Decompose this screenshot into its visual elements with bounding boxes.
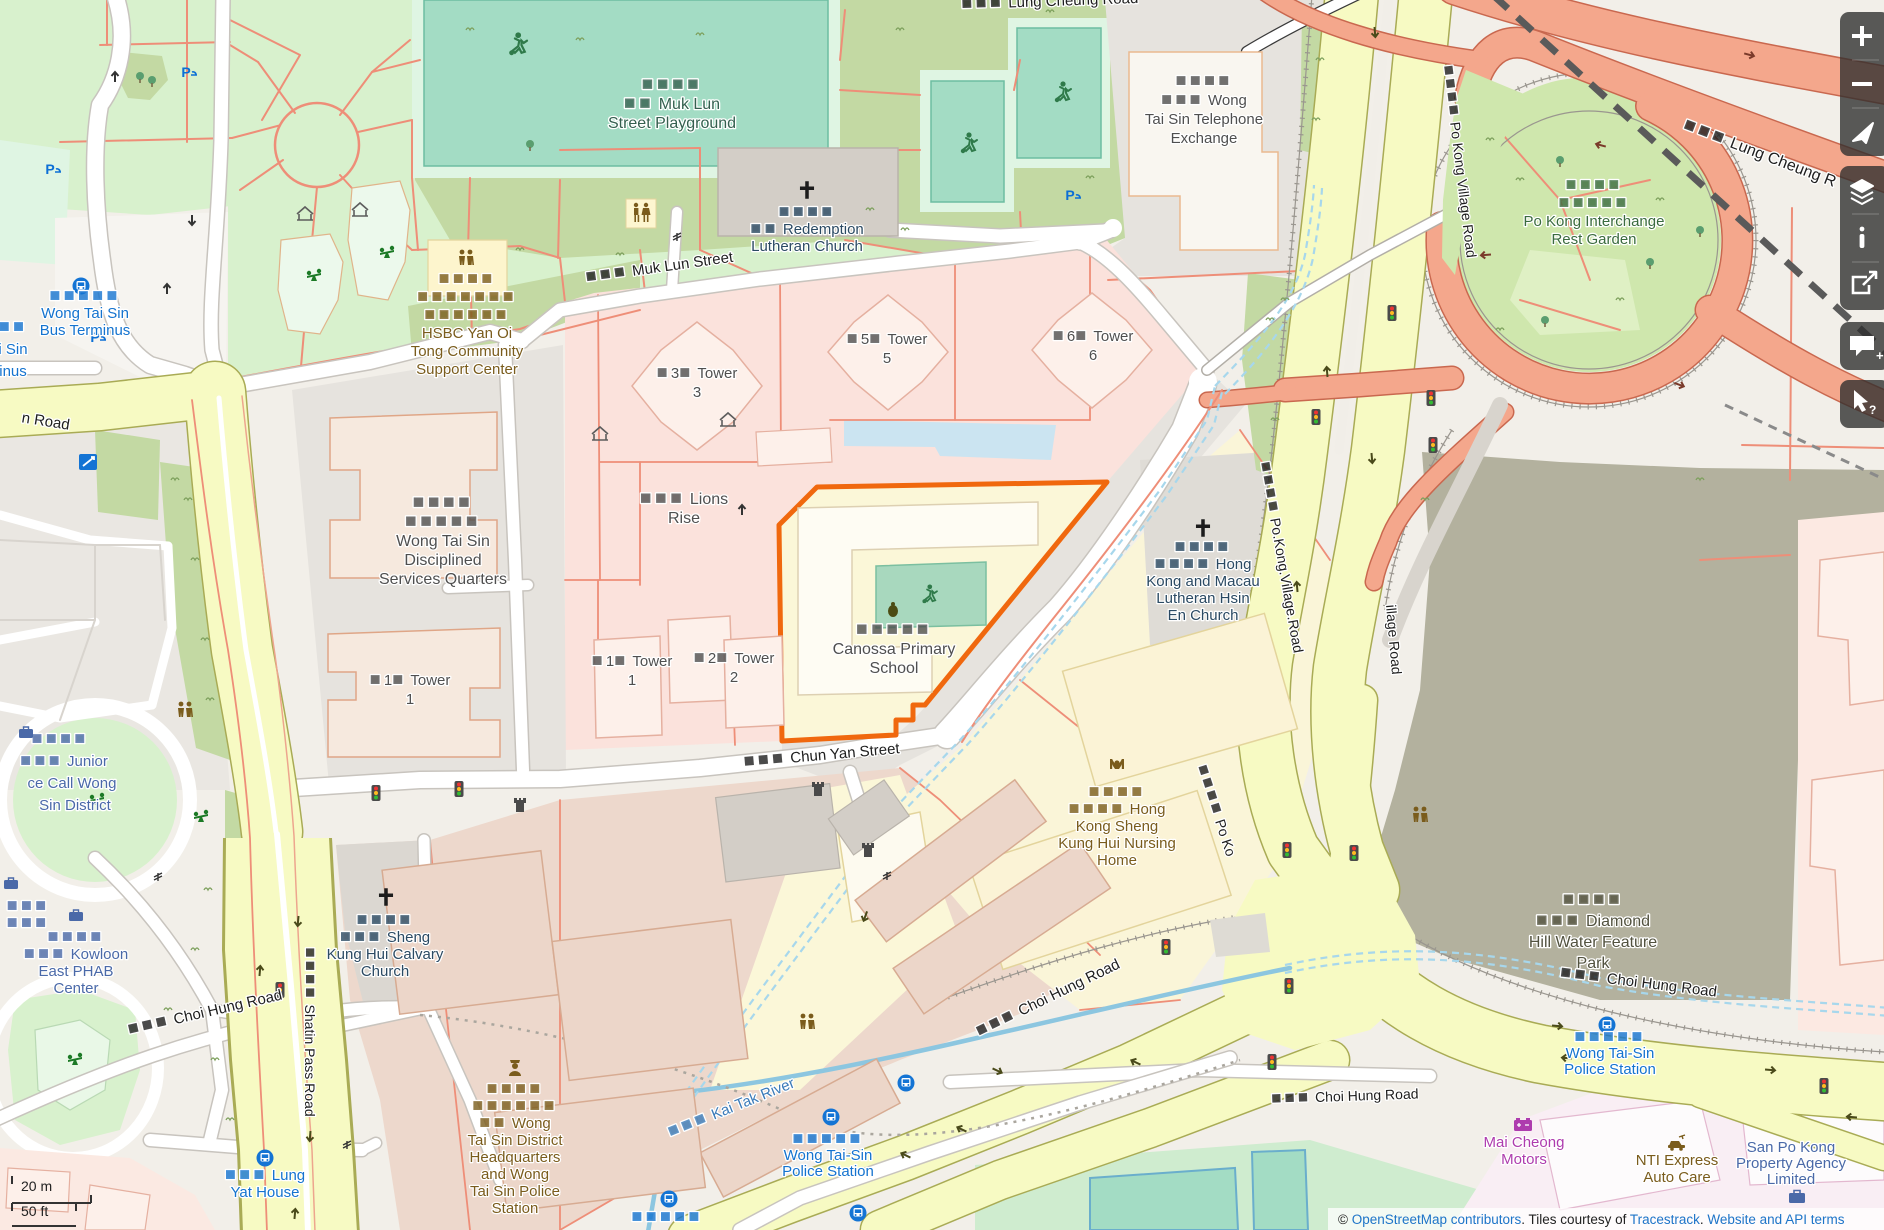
svg-text:P: P <box>181 64 190 80</box>
svg-text:■■■ LungYat House: ■■■ LungYat House <box>225 1163 305 1201</box>
svg-text:■■■■: ■■■■ <box>32 727 89 748</box>
svg-text:20 m: 20 m <box>21 1178 52 1194</box>
svg-text:■■i Sininus: ■■i Sininus <box>0 315 28 380</box>
svg-text:■■■■■■■■■■■■ WongTai Sin Distr: ■■■■■■■■■■■■ WongTai Sin DistrictHeadqua… <box>467 1077 563 1217</box>
svg-text:?: ? <box>1869 403 1876 417</box>
svg-text:■■■ Junior: ■■■ Junior <box>20 749 108 770</box>
svg-text:■■■■ Shatin Pass Road: ■■■■ Shatin Pass Road <box>301 947 320 1116</box>
svg-text:■■■■■Wong Tai-SinPolice Statio: ■■■■■Wong Tai-SinPolice Station <box>782 1127 874 1180</box>
svg-text:■■■■■■: ■■■■■■ <box>7 894 50 932</box>
svg-text:+: + <box>1876 348 1884 363</box>
svg-text:■■■■■: ■■■■■ <box>631 1205 702 1226</box>
svg-text:ce Call Wong: ce Call Wong <box>28 775 117 792</box>
svg-text:P: P <box>45 161 54 177</box>
svg-text:■■■■■Wong Tai-SinPolice Statio: ■■■■■Wong Tai-SinPolice Station <box>1564 1025 1656 1078</box>
svg-text:Sin District: Sin District <box>39 797 112 814</box>
svg-text:P: P <box>1065 187 1074 203</box>
svg-text:© OpenStreetMap contributors.: © OpenStreetMap contributors. Tiles cour… <box>1338 1212 1845 1227</box>
svg-text:■■■■■Wong Tai SinBus Terminus: ■■■■■Wong Tai SinBus Terminus <box>40 284 131 339</box>
svg-text:NTI ExpressAuto Care: NTI ExpressAuto Care <box>1636 1152 1719 1186</box>
svg-text:50 ft: 50 ft <box>21 1203 48 1219</box>
